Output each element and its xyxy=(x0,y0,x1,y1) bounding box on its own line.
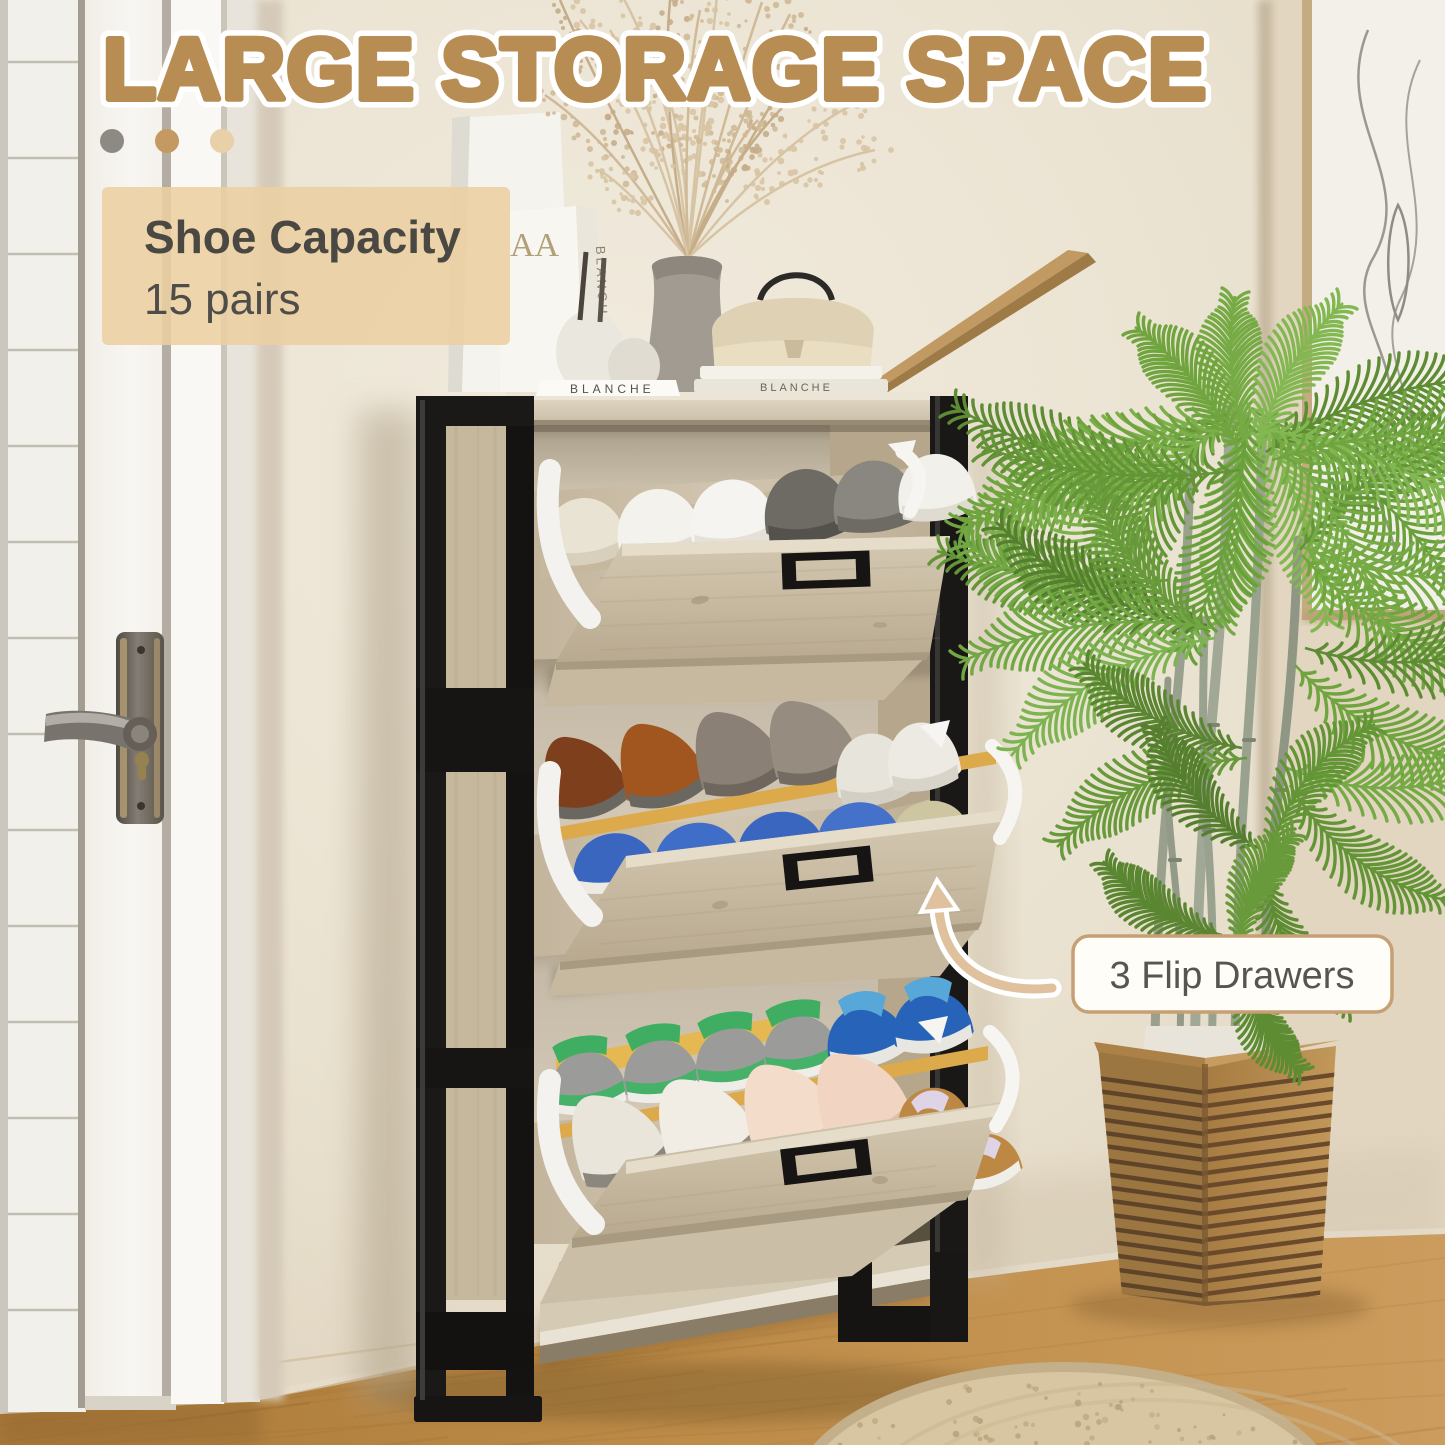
svg-text:15 pairs: 15 pairs xyxy=(144,275,301,324)
svg-text:BLANCHE: BLANCHE xyxy=(570,382,655,396)
svg-text:3 Flip Drawers: 3 Flip Drawers xyxy=(1110,955,1355,997)
svg-text:Shoe Capacity: Shoe Capacity xyxy=(144,211,461,263)
svg-text:BLANCHE: BLANCHE xyxy=(760,382,833,394)
svg-text:AA: AA xyxy=(510,227,560,264)
svg-text:LARGE STORAGE SPACE: LARGE STORAGE SPACE xyxy=(103,21,1207,118)
